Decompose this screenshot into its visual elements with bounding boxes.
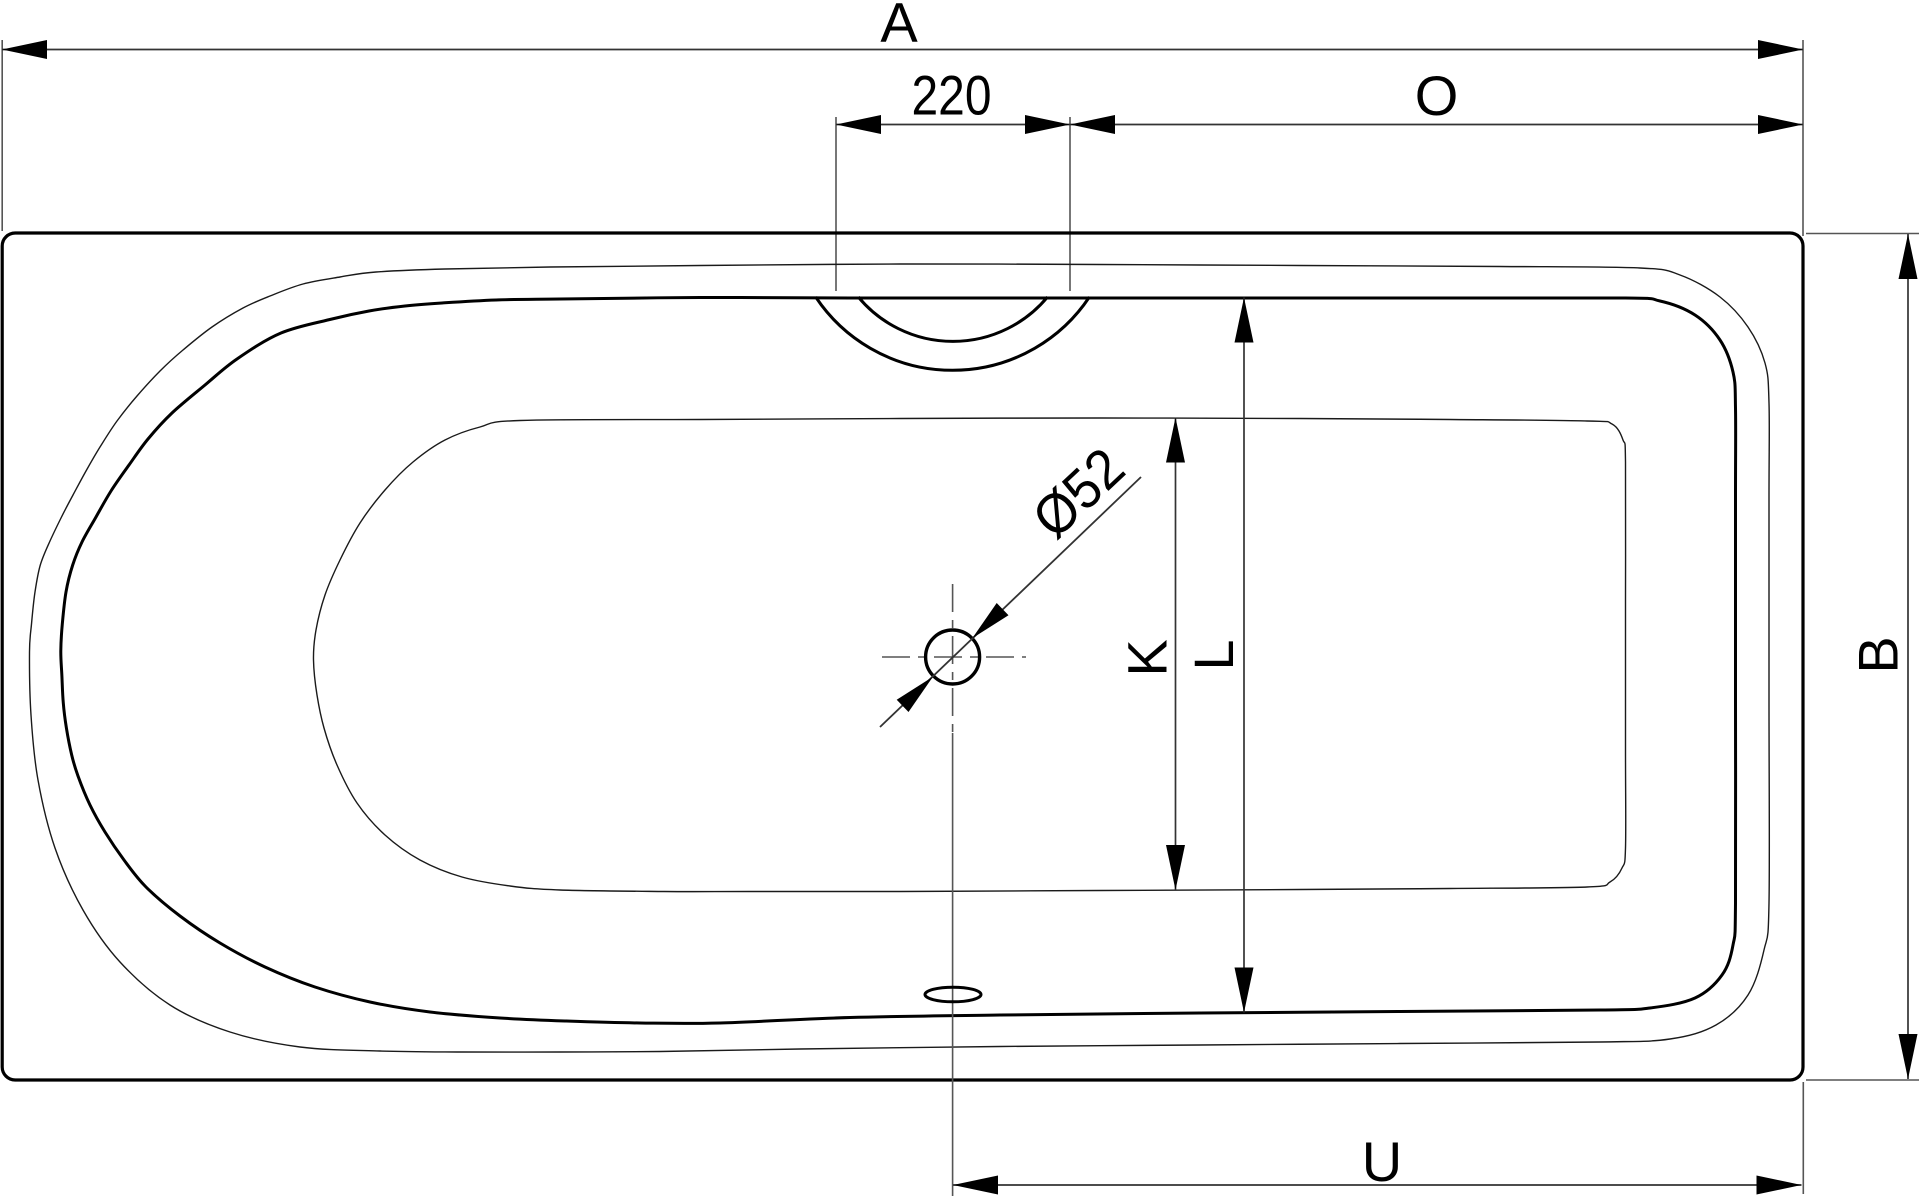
svg-text:A: A (880, 0, 918, 54)
svg-text:220: 220 (912, 64, 992, 127)
svg-text:B: B (1847, 636, 1910, 673)
svg-text:L: L (1182, 639, 1245, 670)
svg-text:K: K (1116, 639, 1179, 676)
svg-text:O: O (1415, 64, 1459, 127)
svg-text:U: U (1362, 1130, 1402, 1193)
